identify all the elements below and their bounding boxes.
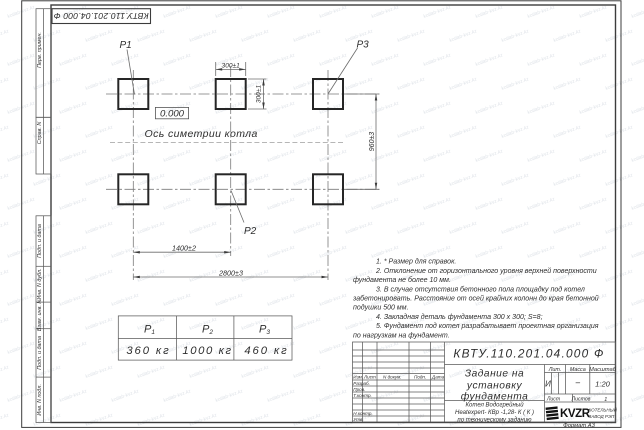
svg-text:kotlab-kvz.kz: kotlab-kvz.kz (449, 28, 479, 44)
svg-text:Листов: Листов (571, 397, 591, 403)
svg-text:КОТЕЛЬНЫЙ: КОТЕЛЬНЫЙ (589, 405, 618, 412)
svg-text:Подп. и дата: Подп. и дата (37, 336, 43, 370)
svg-text:300±1: 300±1 (256, 85, 263, 104)
svg-text:P2: P2 (244, 226, 257, 237)
svg-text:kotlab-kvz.kz: kotlab-kvz.kz (293, 316, 323, 332)
svg-text:Задание на: Задание на (465, 369, 524, 380)
svg-text:kotlab-kvz.kz: kotlab-kvz.kz (475, 100, 505, 116)
svg-text:kotlab-kvz.kz: kotlab-kvz.kz (0, 28, 10, 44)
svg-text:kotlab-kvz.kz: kotlab-kvz.kz (319, 52, 349, 68)
svg-text:kotlab-kvz.kz: kotlab-kvz.kz (293, 28, 323, 44)
svg-text:kotlab-kvz.kz: kotlab-kvz.kz (631, 100, 644, 116)
svg-text:забетонировать. Расстояние от: забетонировать. Расстояние от осей крайн… (352, 295, 599, 303)
svg-text:kotlab-kvz.kz: kotlab-kvz.kz (267, 244, 297, 260)
svg-text:kotlab-kvz.kz: kotlab-kvz.kz (423, 340, 453, 356)
svg-text:kotlab-kvz.kz: kotlab-kvz.kz (241, 28, 271, 44)
svg-text:Лит.: Лит. (548, 367, 562, 373)
svg-text:kotlab-kvz.kz: kotlab-kvz.kz (293, 268, 323, 284)
svg-text:kotlab-kvz.kz: kotlab-kvz.kz (0, 220, 10, 236)
svg-text:Дата: Дата (431, 375, 445, 380)
svg-text:Утв.: Утв. (353, 417, 363, 422)
svg-text:kotlab-kvz.kz: kotlab-kvz.kz (189, 364, 219, 380)
svg-text:2800±3: 2800±3 (218, 268, 243, 277)
svg-text:Инв. N дубл.: Инв. N дубл. (37, 268, 43, 299)
svg-text:P3: P3 (259, 324, 270, 337)
svg-text:Подп. и дата: Подп. и дата (37, 224, 43, 258)
svg-text:kotlab-kvz.kz: kotlab-kvz.kz (579, 4, 609, 20)
svg-text:kotlab-kvz.kz: kotlab-kvz.kz (319, 244, 349, 260)
svg-text:kotlab-kvz.kz: kotlab-kvz.kz (293, 412, 323, 428)
svg-text:kotlab-kvz.kz: kotlab-kvz.kz (605, 124, 635, 140)
svg-text:1. * Размер для справок.: 1. * Размер для справок. (376, 258, 456, 266)
svg-text:kotlab-kvz.kz: kotlab-kvz.kz (423, 52, 453, 68)
svg-text:kotlab-kvz.kz: kotlab-kvz.kz (423, 388, 453, 404)
svg-text:kotlab-kvz.kz: kotlab-kvz.kz (0, 316, 10, 332)
svg-text:kotlab-kvz.kz: kotlab-kvz.kz (215, 4, 245, 20)
svg-text:kotlab-kvz.kz: kotlab-kvz.kz (59, 196, 89, 212)
svg-text:КВТУ.110.201.04.000 Ф: КВТУ.110.201.04.000 Ф (54, 11, 149, 21)
svg-text:360 кг: 360 кг (126, 345, 170, 357)
svg-text:kotlab-kvz.kz: kotlab-kvz.kz (449, 124, 479, 140)
svg-text:Формат А3: Формат А3 (563, 423, 595, 429)
svg-text:kotlab-kvz.kz: kotlab-kvz.kz (59, 292, 89, 308)
svg-text:kotlab-kvz.kz: kotlab-kvz.kz (0, 124, 10, 140)
svg-text:4. Закладная деталь фундамент: 4. Закладная деталь фундамента 300 x 300… (376, 313, 543, 321)
svg-text:kotlab-kvz.kz: kotlab-kvz.kz (397, 412, 427, 428)
svg-text:ЗАВОД РЭП: ЗАВОД РЭП (589, 414, 616, 419)
svg-text:3. В случае отсутствия бетонн: 3. В случае отсутствия бетонного пола пл… (376, 285, 585, 293)
svg-text:kotlab-kvz.kz: kotlab-kvz.kz (0, 364, 10, 380)
svg-text:kotlab-kvz.kz: kotlab-kvz.kz (189, 220, 219, 236)
svg-text:kotlab-kvz.kz: kotlab-kvz.kz (319, 340, 349, 356)
svg-text:kotlab-kvz.kz: kotlab-kvz.kz (345, 316, 375, 332)
svg-text:kotlab-kvz.kz: kotlab-kvz.kz (33, 172, 63, 188)
svg-text:КВТУ.110.201.04.000 Ф: КВТУ.110.201.04.000 Ф (453, 347, 604, 361)
svg-text:kotlab-kvz.kz: kotlab-kvz.kz (371, 100, 401, 116)
svg-text:kotlab-kvz.kz: kotlab-kvz.kz (631, 292, 644, 308)
svg-text:kotlab-kvz.kz: kotlab-kvz.kz (605, 28, 635, 44)
svg-text:kotlab-kvz.kz: kotlab-kvz.kz (371, 52, 401, 68)
svg-text:kotlab-kvz.kz: kotlab-kvz.kz (85, 220, 115, 236)
svg-text:kotlab-kvz.kz: kotlab-kvz.kz (631, 148, 644, 164)
svg-text:kotlab-kvz.kz: kotlab-kvz.kz (553, 28, 583, 44)
svg-text:kotlab-kvz.kz: kotlab-kvz.kz (241, 268, 271, 284)
svg-text:Котел Водогрейный: Котел Водогрейный (465, 401, 524, 408)
svg-text:KVZR: KVZR (560, 408, 591, 420)
svg-text:kotlab-kvz.kz: kotlab-kvz.kz (449, 76, 479, 92)
svg-text:kotlab-kvz.kz: kotlab-kvz.kz (137, 412, 167, 428)
svg-text:kotlab-kvz.kz: kotlab-kvz.kz (215, 148, 245, 164)
svg-text:0.000: 0.000 (160, 109, 185, 120)
svg-text:kotlab-kvz.kz: kotlab-kvz.kz (631, 196, 644, 212)
svg-text:Инв. N подл.: Инв. N подл. (37, 384, 43, 416)
svg-text:по нагрузкам на фундамент.: по нагрузкам на фундамент. (353, 331, 450, 339)
svg-text:kotlab-kvz.kz: kotlab-kvz.kz (0, 268, 10, 284)
svg-text:kotlab-kvz.kz: kotlab-kvz.kz (241, 364, 271, 380)
svg-text:Справ. N: Справ. N (37, 122, 43, 145)
svg-text:kotlab-kvz.kz: kotlab-kvz.kz (59, 388, 89, 404)
svg-text:kotlab-kvz.kz: kotlab-kvz.kz (293, 220, 323, 236)
svg-text:kotlab-kvz.kz: kotlab-kvz.kz (501, 28, 531, 44)
svg-text:установку: установку (466, 381, 523, 392)
svg-text:kotlab-kvz.kz: kotlab-kvz.kz (189, 172, 219, 188)
svg-text:kotlab-kvz.kz: kotlab-kvz.kz (137, 220, 167, 236)
svg-text:N докум.: N докум. (383, 375, 402, 380)
svg-text:kotlab-kvz.kz: kotlab-kvz.kz (189, 268, 219, 284)
svg-text:kotlab-kvz.kz: kotlab-kvz.kz (397, 76, 427, 92)
svg-text:kotlab-kvz.kz: kotlab-kvz.kz (371, 340, 401, 356)
svg-text:kotlab-kvz.kz: kotlab-kvz.kz (553, 172, 583, 188)
svg-text:kotlab-kvz.kz: kotlab-kvz.kz (137, 268, 167, 284)
svg-text:kotlab-kvz.kz: kotlab-kvz.kz (0, 76, 10, 92)
svg-text:kotlab-kvz.kz: kotlab-kvz.kz (631, 52, 644, 68)
svg-text:kotlab-kvz.kz: kotlab-kvz.kz (579, 100, 609, 116)
svg-text:kotlab-kvz.kz: kotlab-kvz.kz (527, 4, 557, 20)
svg-text:kotlab-kvz.kz: kotlab-kvz.kz (85, 364, 115, 380)
svg-text:kotlab-kvz.kz: kotlab-kvz.kz (631, 340, 644, 356)
svg-text:P3: P3 (357, 40, 370, 51)
svg-text:kotlab-kvz.kz: kotlab-kvz.kz (111, 148, 141, 164)
svg-text:kotlab-kvz.kz: kotlab-kvz.kz (111, 292, 141, 308)
svg-text:kotlab-kvz.kz: kotlab-kvz.kz (59, 340, 89, 356)
svg-text:kotlab-kvz.kz: kotlab-kvz.kz (59, 244, 89, 260)
svg-text:kotlab-kvz.kz: kotlab-kvz.kz (85, 76, 115, 92)
svg-text:kotlab-kvz.kz: kotlab-kvz.kz (475, 4, 505, 20)
svg-text:5. Фундамент под котел разраб: 5. Фундамент под котел разрабатывает про… (376, 322, 599, 330)
svg-text:kotlab-kvz.kz: kotlab-kvz.kz (423, 4, 453, 20)
svg-text:kotlab-kvz.kz: kotlab-kvz.kz (215, 292, 245, 308)
svg-text:kotlab-kvz.kz: kotlab-kvz.kz (579, 244, 609, 260)
svg-text:Лист: Лист (546, 397, 561, 403)
svg-text:P1: P1 (120, 40, 132, 51)
svg-text:Перв. примен.: Перв. примен. (37, 32, 43, 68)
svg-text:Изм.: Изм. (353, 375, 363, 380)
svg-text:960±3: 960±3 (369, 132, 376, 152)
svg-text:kotlab-kvz.kz: kotlab-kvz.kz (163, 148, 193, 164)
svg-text:kotlab-kvz.kz: kotlab-kvz.kz (293, 124, 323, 140)
svg-text:Пров.: Пров. (353, 387, 365, 392)
svg-text:kotlab-kvz.kz: kotlab-kvz.kz (85, 412, 115, 428)
svg-text:kotlab-kvz.kz: kotlab-kvz.kz (501, 124, 531, 140)
svg-text:kotlab-kvz.kz: kotlab-kvz.kz (527, 148, 557, 164)
svg-text:kotlab-kvz.kz: kotlab-kvz.kz (189, 76, 219, 92)
svg-text:Разраб.: Разраб. (353, 381, 370, 386)
svg-text:Heatexpert- КВр -1,28- К ( К ): Heatexpert- КВр -1,28- К ( К ) (455, 410, 534, 416)
svg-text:kotlab-kvz.kz: kotlab-kvz.kz (267, 4, 297, 20)
svg-text:kotlab-kvz.kz: kotlab-kvz.kz (631, 4, 644, 20)
svg-text:kotlab-kvz.kz: kotlab-kvz.kz (631, 388, 644, 404)
svg-text:kotlab-kvz.kz: kotlab-kvz.kz (553, 76, 583, 92)
svg-text:И: И (545, 380, 551, 389)
svg-text:kotlab-kvz.kz: kotlab-kvz.kz (605, 76, 635, 92)
svg-text:2. Отклонение от горизонтальн: 2. Отклонение от горизонтального уровня … (375, 267, 597, 275)
svg-text:Взам. инв. N: Взам. инв. N (37, 300, 43, 332)
svg-text:kotlab-kvz.kz: kotlab-kvz.kz (319, 148, 349, 164)
svg-text:kotlab-kvz.kz: kotlab-kvz.kz (631, 244, 644, 260)
svg-text:kotlab-kvz.kz: kotlab-kvz.kz (475, 196, 505, 212)
svg-text:kotlab-kvz.kz: kotlab-kvz.kz (397, 28, 427, 44)
svg-text:kotlab-kvz.kz: kotlab-kvz.kz (241, 412, 271, 428)
svg-text:kotlab-kvz.kz: kotlab-kvz.kz (449, 172, 479, 188)
svg-text:300±1: 300±1 (222, 63, 241, 70)
svg-text:kotlab-kvz.kz: kotlab-kvz.kz (85, 316, 115, 332)
svg-text:по техническому заданию: по техническому заданию (457, 417, 532, 423)
svg-text:Ось симетрии котла: Ось симетрии котла (145, 128, 258, 140)
svg-text:kotlab-kvz.kz: kotlab-kvz.kz (605, 172, 635, 188)
svg-text:Масса: Масса (570, 367, 586, 373)
svg-text:1:20: 1:20 (595, 379, 611, 388)
svg-text:kotlab-kvz.kz: kotlab-kvz.kz (189, 28, 219, 44)
svg-text:kotlab-kvz.kz: kotlab-kvz.kz (527, 244, 557, 260)
svg-text:kotlab-kvz.kz: kotlab-kvz.kz (267, 52, 297, 68)
svg-text:kotlab-kvz.kz: kotlab-kvz.kz (605, 268, 635, 284)
svg-text:kotlab-kvz.kz: kotlab-kvz.kz (475, 148, 505, 164)
svg-text:kotlab-kvz.kz: kotlab-kvz.kz (267, 292, 297, 308)
svg-text:kotlab-kvz.kz: kotlab-kvz.kz (215, 388, 245, 404)
svg-text:kotlab-kvz.kz: kotlab-kvz.kz (605, 220, 635, 236)
svg-text:kotlab-kvz.kz: kotlab-kvz.kz (267, 100, 297, 116)
svg-text:Масштаб: Масштаб (589, 367, 617, 373)
svg-text:kotlab-kvz.kz: kotlab-kvz.kz (85, 268, 115, 284)
svg-text:kotlab-kvz.kz: kotlab-kvz.kz (371, 388, 401, 404)
svg-text:kotlab-kvz.kz: kotlab-kvz.kz (267, 196, 297, 212)
svg-text:kotlab-kvz.kz: kotlab-kvz.kz (0, 172, 10, 188)
svg-text:P2: P2 (202, 324, 213, 337)
svg-text:kotlab-kvz.kz: kotlab-kvz.kz (397, 172, 427, 188)
svg-text:kotlab-kvz.kz: kotlab-kvz.kz (163, 388, 193, 404)
svg-text:kotlab-kvz.kz: kotlab-kvz.kz (345, 76, 375, 92)
svg-text:kotlab-kvz.kz: kotlab-kvz.kz (293, 364, 323, 380)
svg-text:kotlab-kvz.kz: kotlab-kvz.kz (397, 124, 427, 140)
svg-text:kotlab-kvz.kz: kotlab-kvz.kz (111, 52, 141, 68)
svg-text:1400±2: 1400±2 (172, 244, 196, 253)
svg-text:kotlab-kvz.kz: kotlab-kvz.kz (449, 220, 479, 236)
svg-text:kotlab-kvz.kz: kotlab-kvz.kz (501, 220, 531, 236)
svg-text:kotlab-kvz.kz: kotlab-kvz.kz (527, 196, 557, 212)
svg-text:kotlab-kvz.kz: kotlab-kvz.kz (33, 76, 63, 92)
svg-text:kotlab-kvz.kz: kotlab-kvz.kz (397, 220, 427, 236)
svg-text:kotlab-kvz.kz: kotlab-kvz.kz (371, 196, 401, 212)
svg-text:kotlab-kvz.kz: kotlab-kvz.kz (371, 4, 401, 20)
svg-text:kotlab-kvz.kz: kotlab-kvz.kz (111, 388, 141, 404)
svg-text:фундамента не более 10 мм.: фундамента не более 10 мм. (353, 276, 451, 284)
svg-text:kotlab-kvz.kz: kotlab-kvz.kz (267, 148, 297, 164)
svg-text:kotlab-kvz.kz: kotlab-kvz.kz (527, 100, 557, 116)
svg-text:kotlab-kvz.kz: kotlab-kvz.kz (475, 244, 505, 260)
svg-text:kotlab-kvz.kz: kotlab-kvz.kz (59, 52, 89, 68)
svg-text:kotlab-kvz.kz: kotlab-kvz.kz (137, 364, 167, 380)
svg-text:kotlab-kvz.kz: kotlab-kvz.kz (0, 412, 10, 428)
svg-text:kotlab-kvz.kz: kotlab-kvz.kz (137, 28, 167, 44)
svg-text:kotlab-kvz.kz: kotlab-kvz.kz (579, 196, 609, 212)
svg-text:kotlab-kvz.kz: kotlab-kvz.kz (501, 172, 531, 188)
svg-text:kotlab-kvz.kz: kotlab-kvz.kz (319, 292, 349, 308)
svg-text:460 кг: 460 кг (244, 345, 288, 357)
svg-text:kotlab-kvz.kz: kotlab-kvz.kz (475, 52, 505, 68)
svg-text:kotlab-kvz.kz: kotlab-kvz.kz (553, 220, 583, 236)
svg-text:фундамента: фундамента (461, 391, 529, 403)
svg-text:kotlab-kvz.kz: kotlab-kvz.kz (501, 76, 531, 92)
svg-text:kotlab-kvz.kz: kotlab-kvz.kz (85, 172, 115, 188)
svg-text:kotlab-kvz.kz: kotlab-kvz.kz (267, 388, 297, 404)
svg-text:kotlab-kvz.kz: kotlab-kvz.kz (527, 52, 557, 68)
svg-text:Подп.: Подп. (414, 375, 426, 380)
svg-text:kotlab-kvz.kz: kotlab-kvz.kz (163, 292, 193, 308)
svg-text:kotlab-kvz.kz: kotlab-kvz.kz (319, 4, 349, 20)
svg-text:kotlab-kvz.kz: kotlab-kvz.kz (345, 220, 375, 236)
svg-text:1000 кг: 1000 кг (182, 345, 232, 357)
svg-text:kotlab-kvz.kz: kotlab-kvz.kz (345, 172, 375, 188)
svg-text:kotlab-kvz.kz: kotlab-kvz.kz (579, 148, 609, 164)
svg-text:Н.контр.: Н.контр. (353, 411, 372, 416)
svg-text:kotlab-kvz.kz: kotlab-kvz.kz (163, 52, 193, 68)
svg-text:kotlab-kvz.kz: kotlab-kvz.kz (163, 4, 193, 20)
svg-text:kotlab-kvz.kz: kotlab-kvz.kz (553, 124, 583, 140)
svg-text:kotlab-kvz.kz: kotlab-kvz.kz (605, 316, 635, 332)
svg-text:kotlab-kvz.kz: kotlab-kvz.kz (423, 196, 453, 212)
svg-text:Лист: Лист (363, 375, 376, 380)
svg-text:kotlab-kvz.kz: kotlab-kvz.kz (85, 124, 115, 140)
svg-text:kotlab-kvz.kz: kotlab-kvz.kz (59, 100, 89, 116)
svg-text:–: – (575, 378, 581, 387)
svg-text:kotlab-kvz.kz: kotlab-kvz.kz (85, 28, 115, 44)
svg-text:подушки 500 мм.: подушки 500 мм. (353, 304, 409, 312)
svg-text:kotlab-kvz.kz: kotlab-kvz.kz (423, 100, 453, 116)
svg-text:kotlab-kvz.kz: kotlab-kvz.kz (163, 196, 193, 212)
svg-text:Т.контр.: Т.контр. (353, 393, 372, 398)
svg-text:kotlab-kvz.kz: kotlab-kvz.kz (319, 388, 349, 404)
svg-text:1: 1 (604, 397, 607, 403)
svg-text:kotlab-kvz.kz: kotlab-kvz.kz (189, 412, 219, 428)
svg-text:kotlab-kvz.kz: kotlab-kvz.kz (59, 148, 89, 164)
svg-text:kotlab-kvz.kz: kotlab-kvz.kz (579, 52, 609, 68)
svg-text:kotlab-kvz.kz: kotlab-kvz.kz (423, 148, 453, 164)
